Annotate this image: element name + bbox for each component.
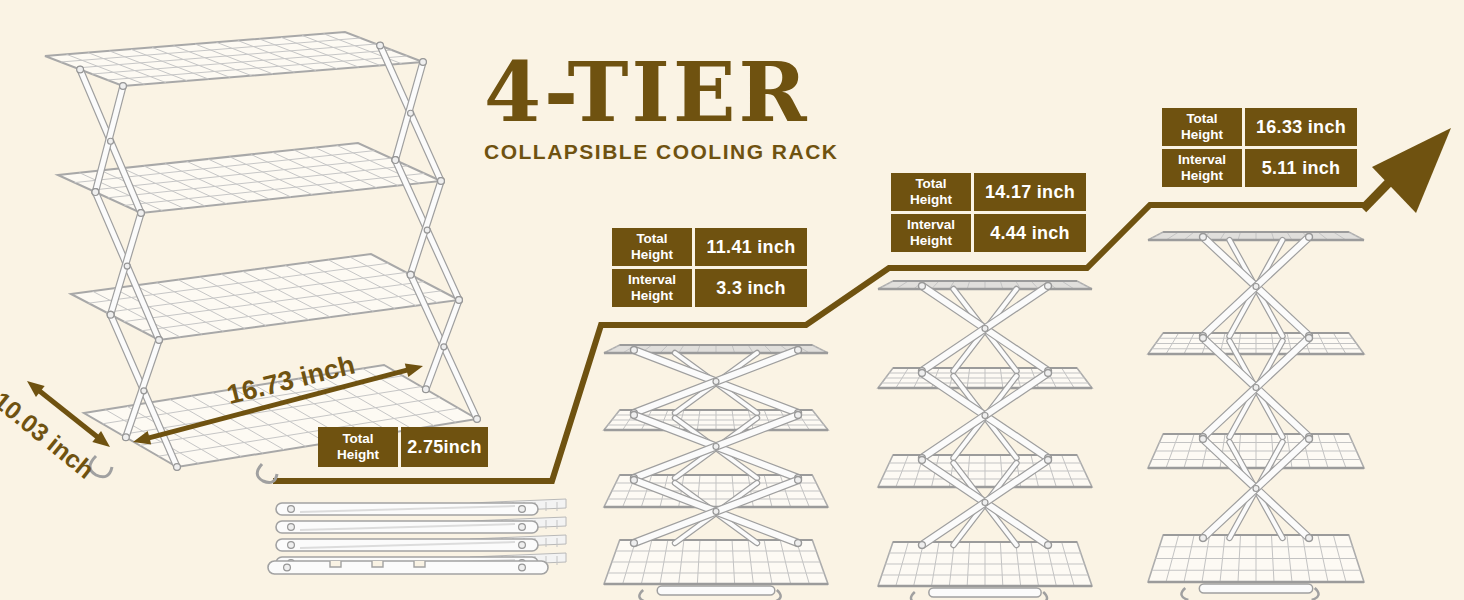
spec-label: Interval Height (1162, 149, 1242, 187)
spec-table-stage2: Total Height 11.41 inch Interval Height … (612, 228, 807, 307)
spec-label: Interval Height (891, 214, 971, 252)
spec-value: 2.75inch (401, 427, 488, 467)
spec-value: 11.41 inch (695, 228, 807, 266)
spec-value: 4.44 inch (974, 214, 1086, 252)
spec-value: 5.11 inch (1245, 149, 1357, 187)
spec-label: Total Height (1162, 108, 1242, 146)
spec-value: 16.33 inch (1245, 108, 1357, 146)
page-title: 4-TIER (484, 50, 884, 135)
spec-table-collapsed: Total Height 2.75inch (318, 427, 488, 467)
spec-label: Total Height (891, 173, 971, 211)
spec-table-stage3: Total Height 14.17 inch Interval Height … (891, 173, 1086, 252)
spec-label: Total Height (612, 228, 692, 266)
width-dimension-label: 16.73 inch (224, 349, 358, 411)
spec-label: Total Height (318, 427, 398, 467)
cooling-rack-infographic: 16.73 inch 10.03 inch 4-TIER COLLAPSIBLE… (0, 0, 1464, 600)
spec-table-stage4: Total Height 16.33 inch Interval Height … (1162, 108, 1357, 187)
title-block: 4-TIER COLLAPSIBLE COOLING RACK (484, 50, 884, 164)
spec-value: 14.17 inch (974, 173, 1086, 211)
page-subtitle: COLLAPSIBLE COOLING RACK (484, 140, 884, 164)
spec-label: Interval Height (612, 269, 692, 307)
spec-value: 3.3 inch (695, 269, 807, 307)
depth-dimension-label: 10.03 inch (0, 386, 100, 485)
